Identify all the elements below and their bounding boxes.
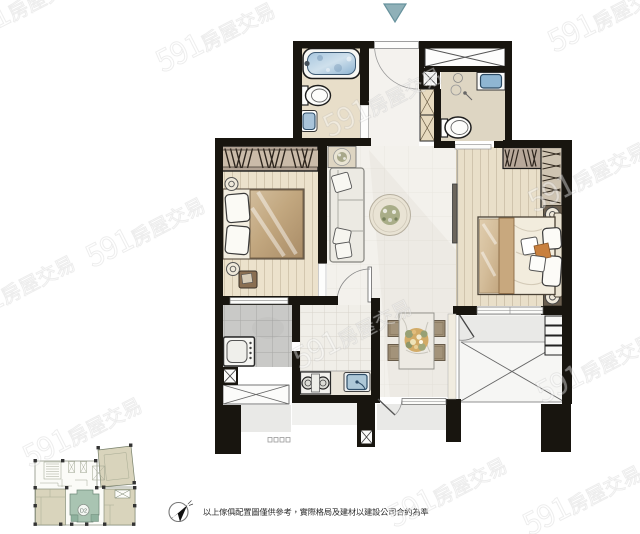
- svg-text:D2: D2: [80, 508, 87, 514]
